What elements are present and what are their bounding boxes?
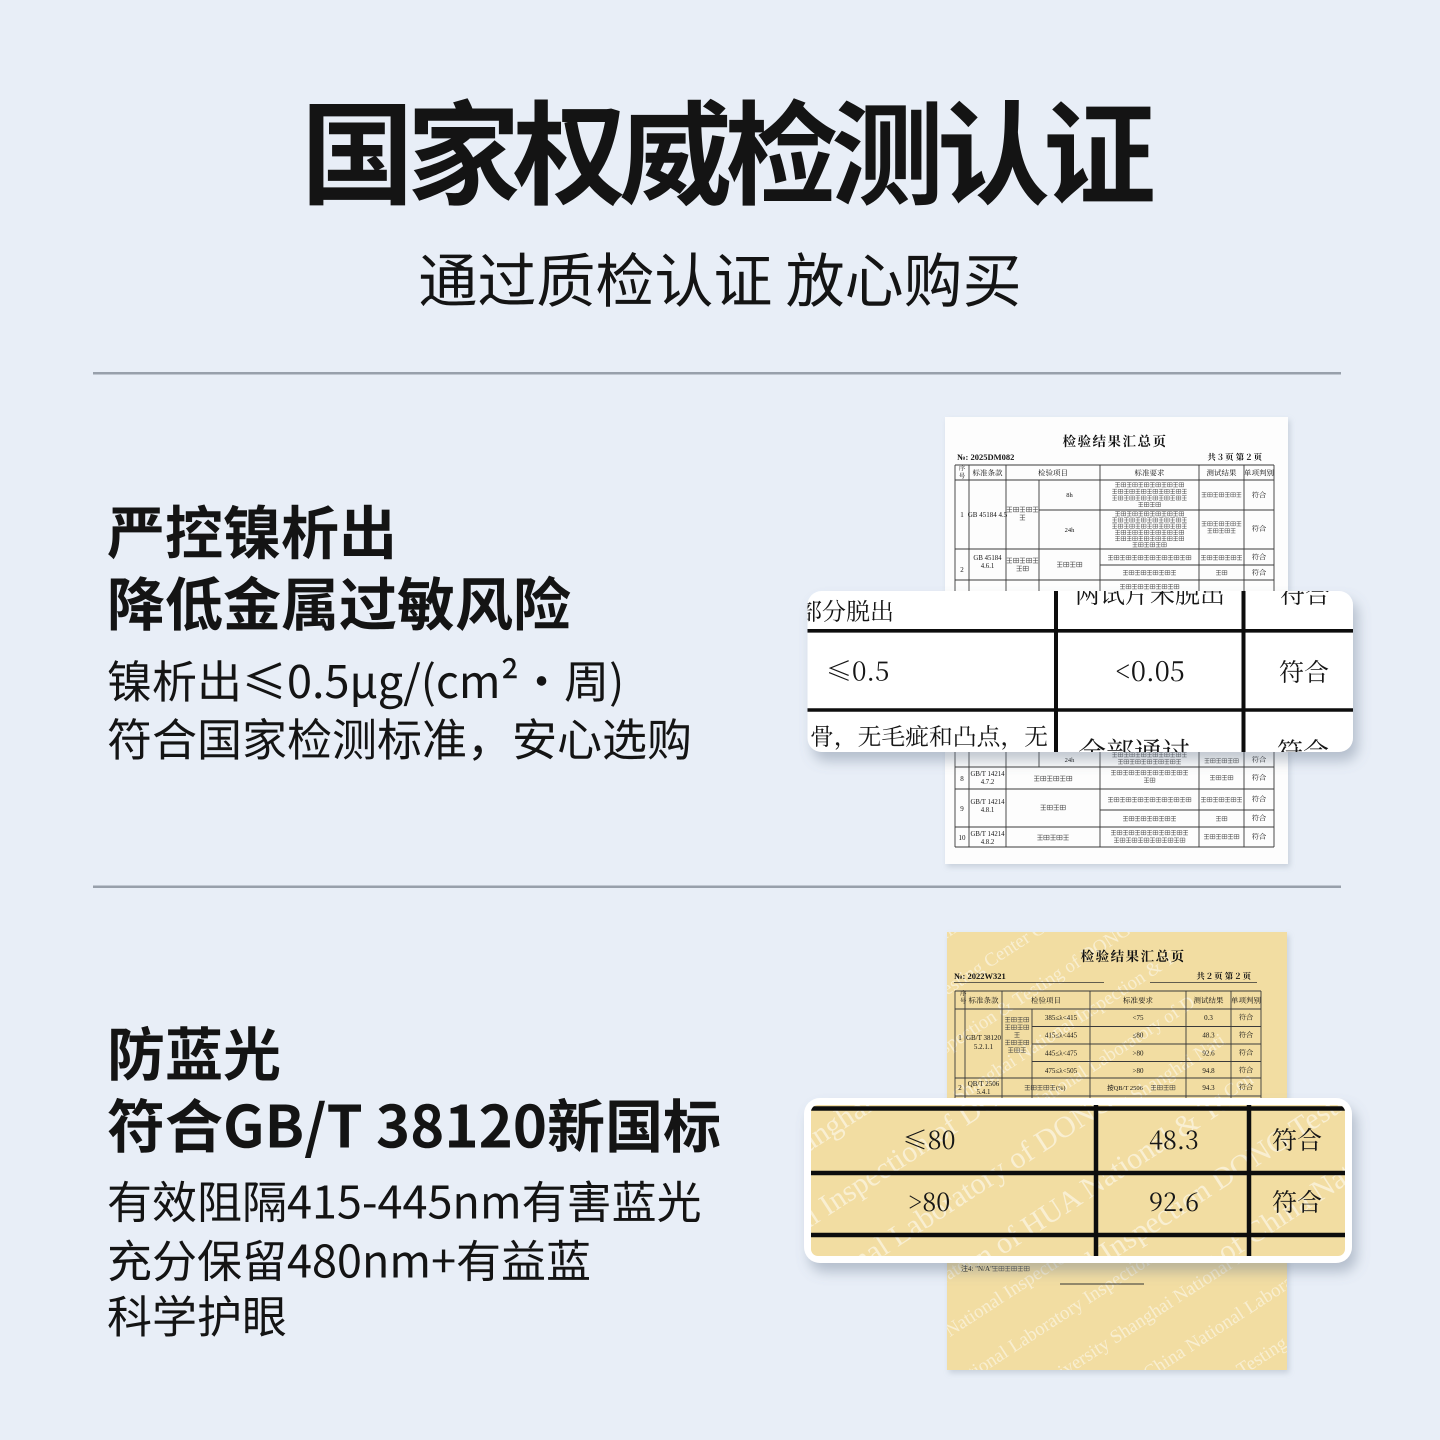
svg-text:QB/T 2506: QB/T 2506 [968,1080,1000,1088]
svg-text:9: 9 [960,805,964,813]
svg-text:GB/T 38120: GB/T 38120 [966,1034,1002,1042]
svg-text:≤80: ≤80 [1133,1032,1144,1040]
svg-text:>80: >80 [1133,1067,1144,1075]
svg-text:<75: <75 [1133,1014,1144,1022]
svg-text:GB/T 14214: GB/T 14214 [970,771,1005,778]
svg-text:注4: "N/A": 注4: "N/A" [961,1264,993,1273]
svg-text:475≤λ<505: 475≤λ<505 [1045,1067,1078,1075]
svg-text:2: 2 [958,1084,962,1092]
svg-text:4.8.2: 4.8.2 [981,839,995,846]
svg-text:4.8.1: 4.8.1 [981,807,995,814]
svg-text:8h: 8h [1066,492,1073,499]
svg-text:48.3: 48.3 [1202,1032,1215,1040]
svg-text:385≤λ<415: 385≤λ<415 [1045,1014,1078,1022]
svg-text:GB/T 14214: GB/T 14214 [970,799,1005,806]
svg-text:4.6.1: 4.6.1 [981,563,995,570]
svg-text:8: 8 [960,775,964,783]
svg-text:№: 2022W321: №: 2022W321 [954,971,1006,981]
svg-text:415≤λ<445: 415≤λ<445 [1045,1032,1078,1040]
svg-text:4.7.2: 4.7.2 [981,779,995,786]
svg-text:GB 45184: GB 45184 [973,555,1002,562]
svg-text:1: 1 [958,1034,962,1042]
svg-text:5.4.1: 5.4.1 [977,1088,992,1096]
svg-text:>80: >80 [1133,1049,1144,1057]
svg-text:10: 10 [959,834,967,842]
svg-text:5.2.1.1: 5.2.1.1 [974,1043,994,1051]
svg-text:按QB/T 2506: 按QB/T 2506 [1107,1083,1144,1092]
svg-text:GB/T 14214: GB/T 14214 [970,831,1005,838]
svg-text:24h: 24h [1065,757,1076,764]
svg-text:94.3: 94.3 [1202,1084,1215,1092]
svg-text:92.6: 92.6 [1202,1049,1215,1057]
svg-text:GB 45184 4.5: GB 45184 4.5 [968,511,1008,519]
svg-text:1: 1 [960,511,964,519]
svg-text:0.3: 0.3 [1204,1014,1213,1022]
svg-text:(%): (%) [1056,1085,1065,1092]
svg-text:2: 2 [960,566,964,574]
svg-text:№: 2025DM082: №: 2025DM082 [957,452,1014,462]
svg-text:94.8: 94.8 [1202,1067,1215,1075]
svg-text:445≤λ<475: 445≤λ<475 [1045,1049,1078,1057]
svg-text:24h: 24h [1065,527,1076,534]
